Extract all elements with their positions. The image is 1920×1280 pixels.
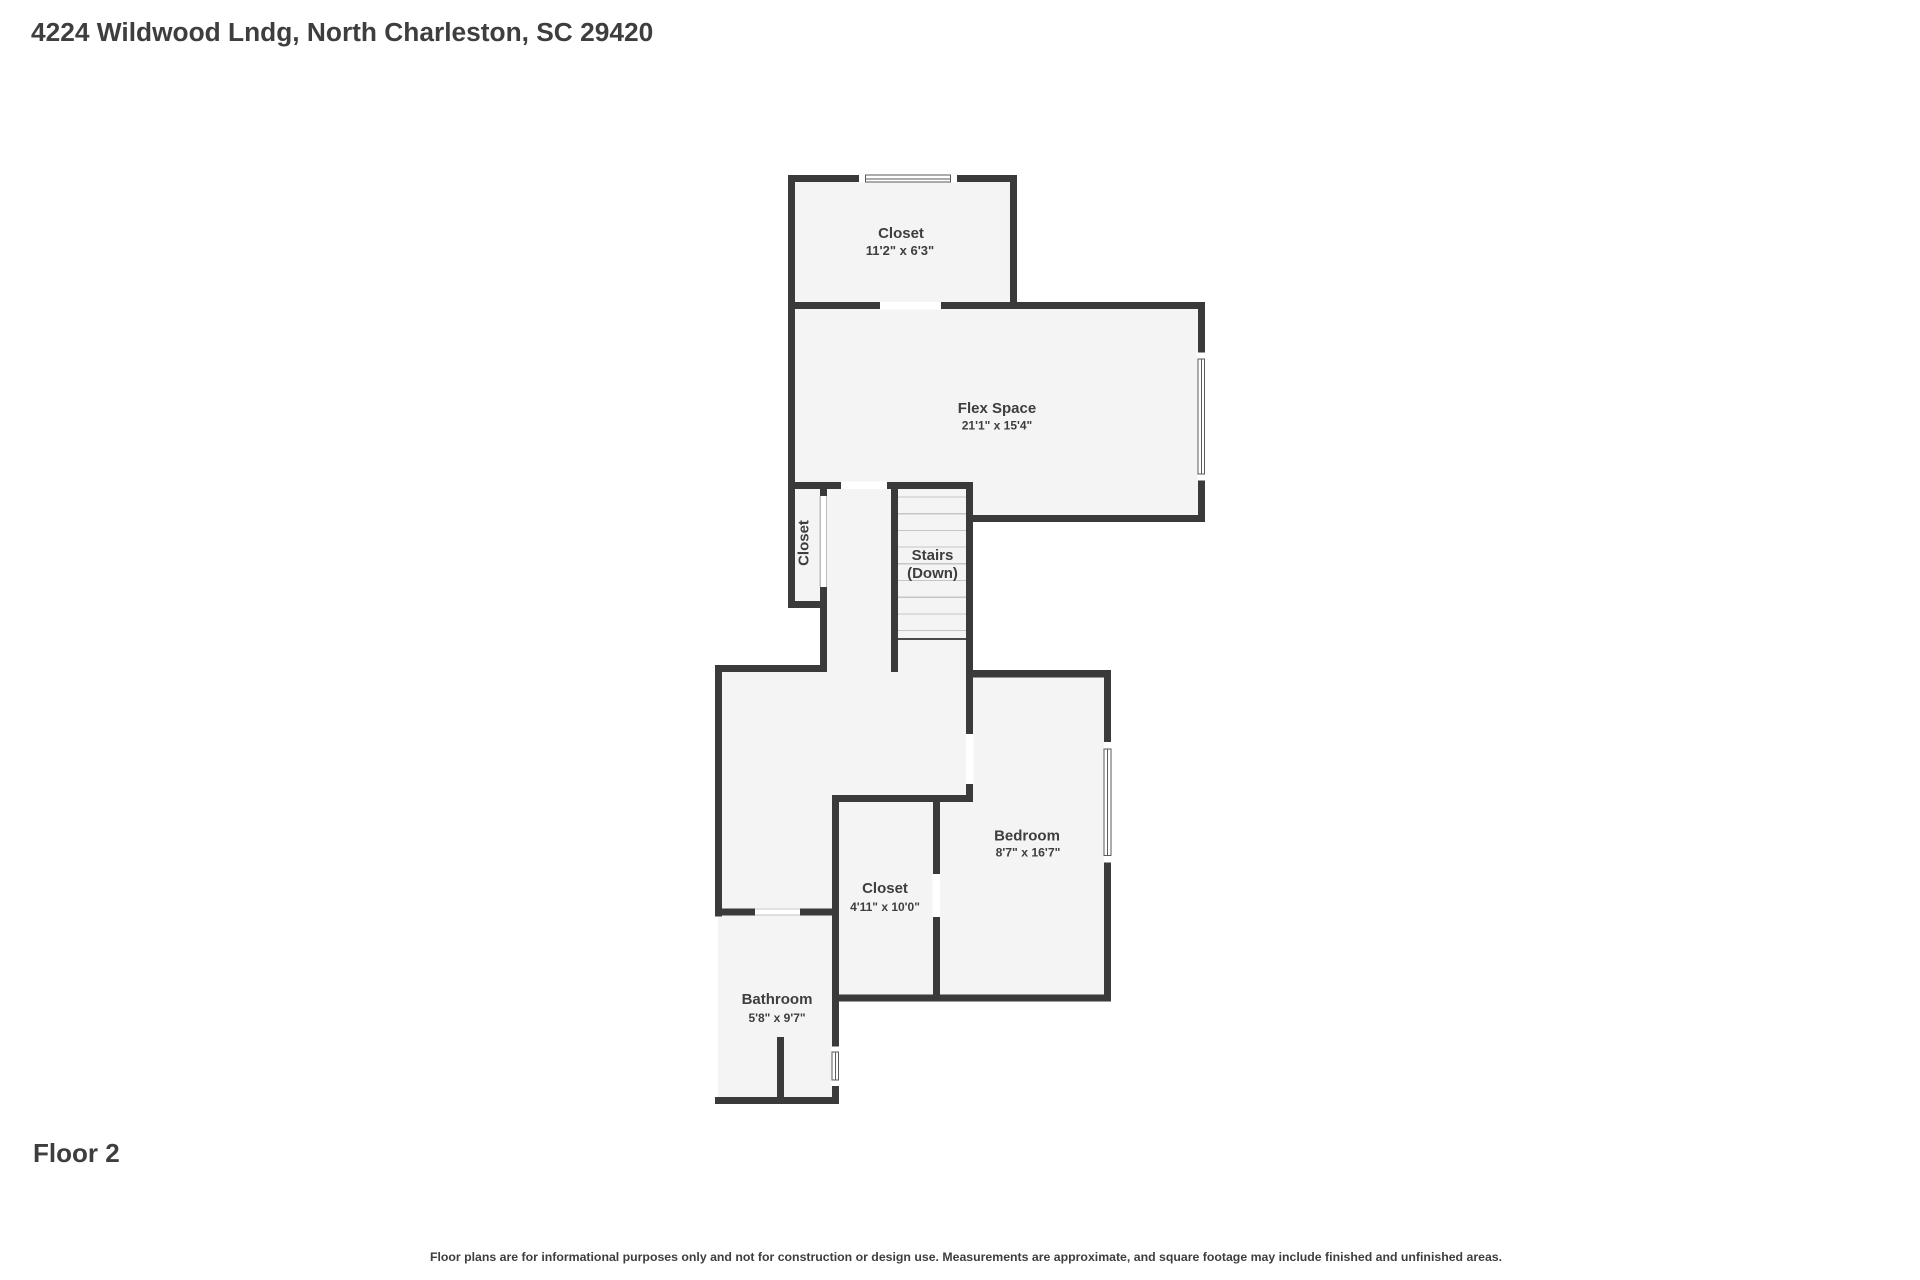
svg-text:Floor 2: Floor 2 [33,1138,120,1168]
svg-text:Closet: Closet [862,880,908,897]
svg-text:4'11" x 10'0": 4'11" x 10'0" [850,900,920,914]
svg-text:Floor plans are for informatio: Floor plans are for informational purpos… [430,1250,1502,1264]
svg-text:Bathroom: Bathroom [742,991,813,1008]
svg-text:21'1" x 15'4": 21'1" x 15'4" [962,419,1032,433]
svg-text:Bedroom: Bedroom [994,828,1060,845]
svg-text:Closet: Closet [878,225,924,242]
svg-text:5'8" x 9'7": 5'8" x 9'7" [748,1011,805,1025]
svg-text:Stairs: Stairs [912,547,954,564]
svg-text:8'7" x 16'7": 8'7" x 16'7" [996,846,1061,860]
svg-text:4224 Wildwood Lndg, North Char: 4224 Wildwood Lndg, North Charleston, SC… [31,17,653,47]
svg-text:(Down): (Down) [907,565,958,582]
svg-text:Closet: Closet [796,520,813,566]
svg-text:Flex Space: Flex Space [958,400,1036,417]
svg-text:11'2" x 6'3": 11'2" x 6'3" [866,243,934,258]
